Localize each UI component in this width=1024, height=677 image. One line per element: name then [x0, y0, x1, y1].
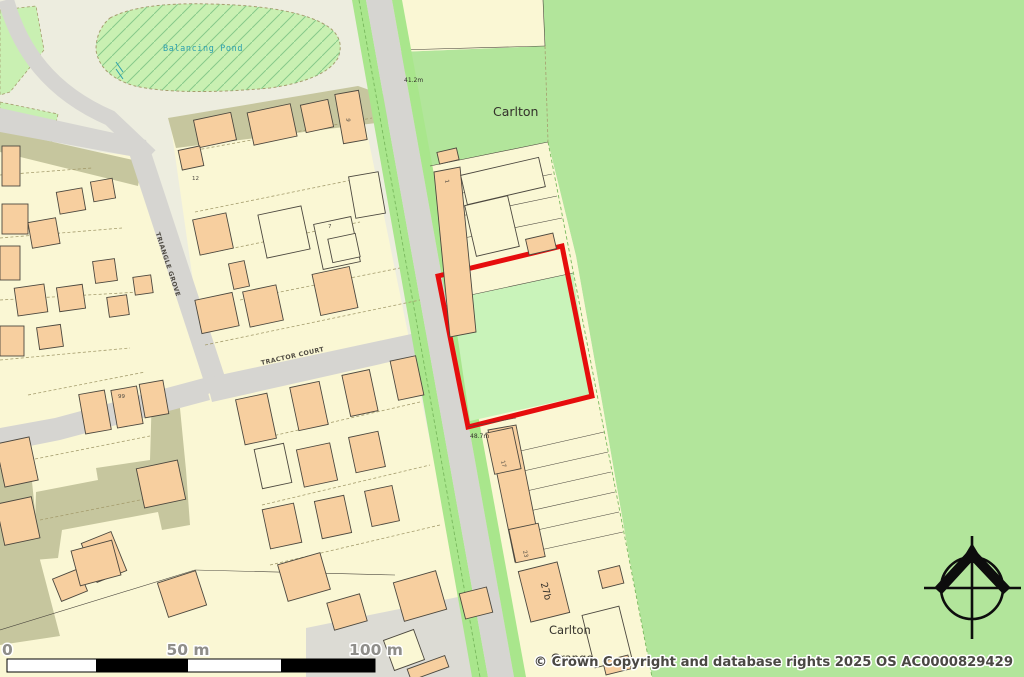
scale-label-mid: 50 m: [166, 641, 209, 659]
copyright-text: © Crown Copyright and database rights 20…: [534, 655, 1013, 670]
house-number: 99: [118, 394, 125, 400]
scale-label-zero: 0: [2, 641, 13, 659]
pond-label: Balancing Pond: [163, 44, 243, 54]
scale-label-end: 100 m: [349, 641, 403, 659]
house-number: 7: [328, 224, 332, 230]
house-number: 12: [192, 176, 199, 182]
map-viewport: Balancing Pond Carlton Carlton Grange TR…: [0, 0, 1024, 677]
spot-height-mid: 48.7m: [470, 433, 489, 440]
carlton-grange-label-1: Carlton: [549, 623, 591, 637]
map-canvas: Balancing Pond Carlton Carlton Grange TR…: [0, 0, 1024, 677]
scale-bar-segment: [281, 659, 375, 672]
carlton-area-label: Carlton: [493, 104, 538, 119]
scale-bar-segment: [96, 659, 188, 672]
spot-height-north: 41.2m: [404, 77, 423, 84]
